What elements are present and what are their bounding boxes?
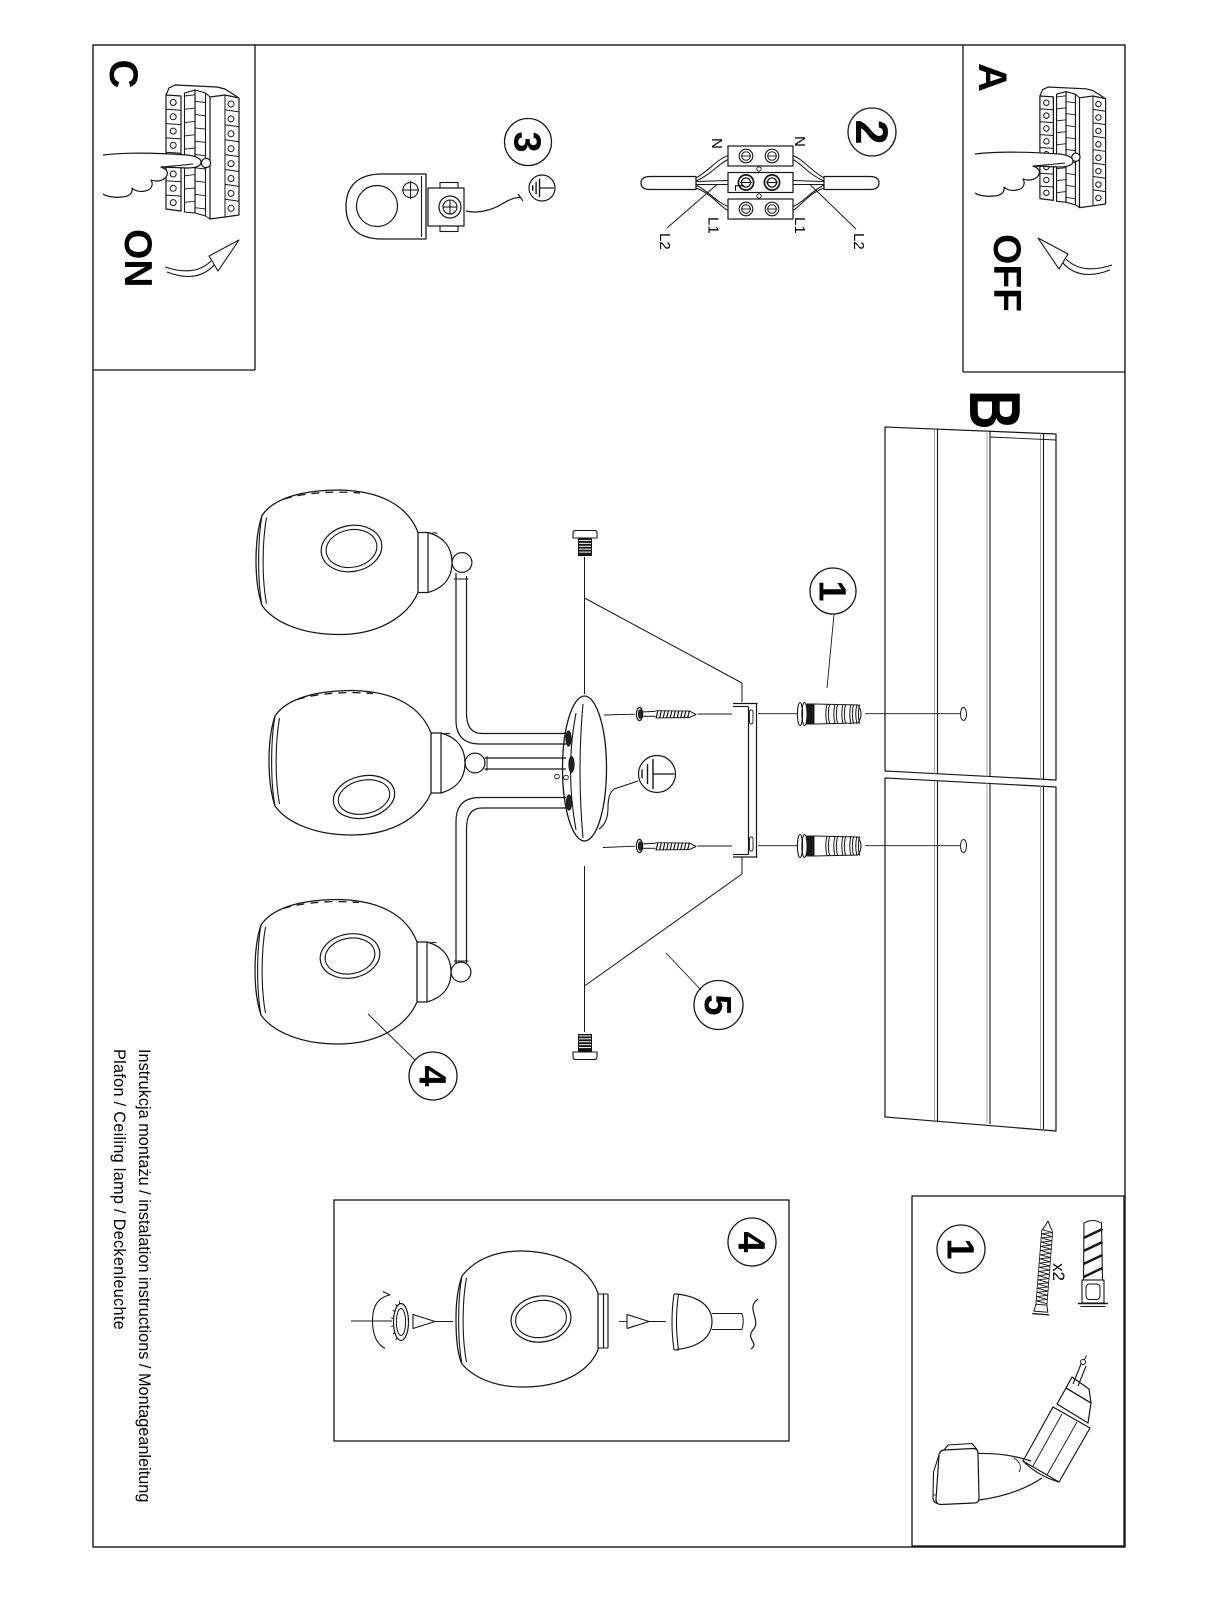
svg-text:B: B	[954, 390, 1035, 430]
svg-text:1: 1	[810, 580, 852, 601]
svg-text:Instrukcja montażu / instalati: Instrukcja montażu / instalation instruc…	[135, 1049, 153, 1502]
svg-text:x2: x2	[1049, 1263, 1068, 1281]
svg-text:L: L	[732, 184, 747, 191]
svg-text:5: 5	[696, 994, 738, 1015]
svg-text:L2: L2	[850, 233, 867, 250]
svg-text:L2: L2	[656, 233, 673, 250]
svg-text:4: 4	[410, 1065, 452, 1086]
svg-text:L1: L1	[791, 217, 808, 234]
svg-text:L1: L1	[705, 217, 722, 234]
svg-text:ON: ON	[116, 229, 159, 288]
svg-text:4: 4	[729, 1231, 771, 1252]
svg-text:C: C	[101, 60, 145, 89]
svg-text:2: 2	[846, 119, 897, 144]
svg-text:A: A	[970, 63, 1014, 92]
svg-text:N: N	[791, 136, 808, 147]
svg-text:Plafon / Ceiling lamp / Decken: Plafon / Ceiling lamp / Deckenleuchte	[110, 1049, 128, 1330]
svg-text:1: 1	[938, 1238, 980, 1259]
svg-text:N: N	[708, 138, 725, 149]
svg-text:OFF: OFF	[985, 234, 1028, 312]
svg-text:3: 3	[505, 131, 547, 152]
